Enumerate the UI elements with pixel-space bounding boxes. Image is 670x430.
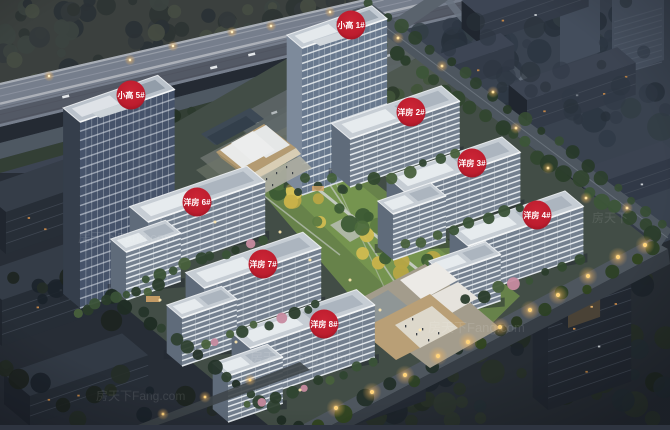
svg-text:洋房 2#: 洋房 2# (397, 107, 425, 117)
svg-text:洋房 3#: 洋房 3# (458, 158, 486, 168)
svg-text:小高 1#: 小高 1# (336, 20, 365, 30)
svg-text:房天下: 房天下 (592, 210, 628, 225)
svg-text:洋房 7#: 洋房 7# (249, 259, 277, 269)
svg-text:房天下Fang.com: 房天下Fang.com (78, 230, 175, 245)
svg-text:房天下Fang.com: 房天下Fang.com (428, 320, 525, 335)
svg-text:洋房 8#: 洋房 8# (310, 319, 338, 329)
svg-text:洋房 4#: 洋房 4# (523, 210, 551, 220)
svg-text:小高 5#: 小高 5# (116, 90, 145, 100)
svg-text:房天下Fang.com: 房天下Fang.com (250, 350, 347, 365)
svg-text:洋房 6#: 洋房 6# (183, 197, 211, 207)
svg-text:房天下Fang.com: 房天下Fang.com (96, 388, 185, 403)
